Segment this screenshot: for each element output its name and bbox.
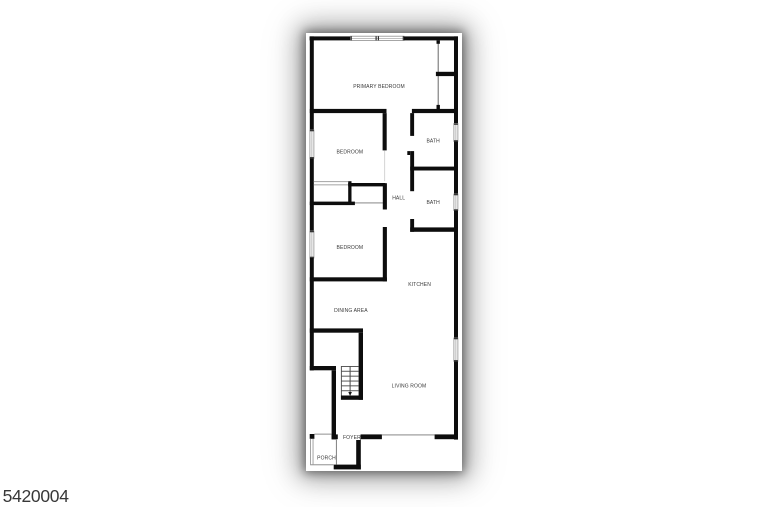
svg-text:FOYER: FOYER xyxy=(343,435,361,441)
svg-text:BATH: BATH xyxy=(426,139,440,145)
svg-text:BEDROOM: BEDROOM xyxy=(337,245,364,251)
svg-text:PORCH: PORCH xyxy=(317,455,336,461)
svg-text:BATH: BATH xyxy=(426,200,440,206)
svg-text:BEDROOM: BEDROOM xyxy=(336,149,363,155)
svg-text:DINING AREA: DINING AREA xyxy=(334,308,368,314)
svg-text:HALL: HALL xyxy=(392,195,405,201)
svg-text:LIVING ROOM: LIVING ROOM xyxy=(392,384,427,390)
svg-text:KITCHEN: KITCHEN xyxy=(408,282,431,288)
svg-text:PRIMARY BEDROOM: PRIMARY BEDROOM xyxy=(353,84,405,90)
